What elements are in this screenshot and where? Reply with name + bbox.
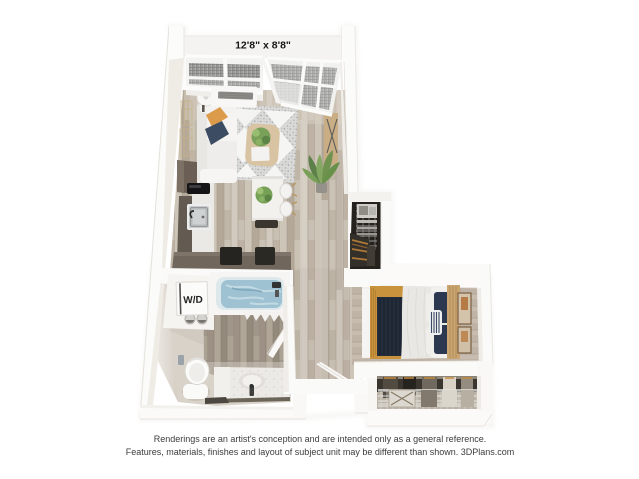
svg-text:W/D: W/D bbox=[183, 295, 203, 307]
svg-text:Features, materials, finishes: Features, materials, finishes and layout… bbox=[126, 447, 515, 457]
svg-text:12'8" x 8'8": 12'8" x 8'8" bbox=[235, 40, 291, 52]
svg-text:Renderings are an artist's con: Renderings are an artist's conception an… bbox=[154, 434, 486, 444]
